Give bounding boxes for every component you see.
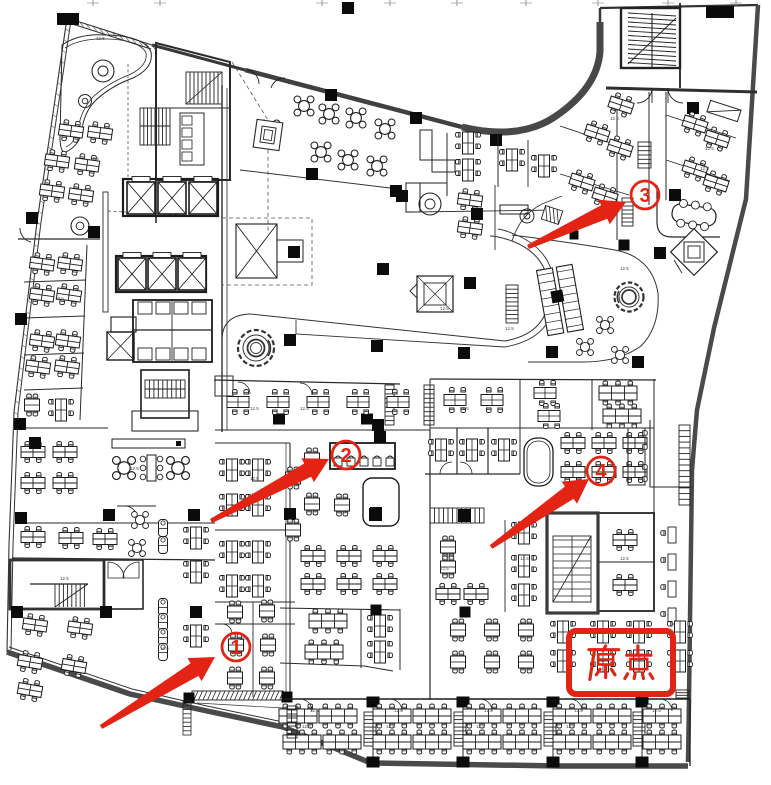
svg-text:12.5: 12.5 <box>505 326 514 331</box>
svg-text:12.5: 12.5 <box>620 556 629 561</box>
svg-text:12.5: 12.5 <box>620 266 629 271</box>
svg-text:12.5: 12.5 <box>96 36 105 41</box>
svg-text:12.5: 12.5 <box>386 724 395 729</box>
svg-text:12.5: 12.5 <box>302 724 311 729</box>
svg-text:12.5: 12.5 <box>440 306 449 311</box>
svg-text:12.5: 12.5 <box>566 724 575 729</box>
svg-text:12.5: 12.5 <box>394 708 403 713</box>
svg-text:12.5: 12.5 <box>250 406 259 411</box>
svg-text:12.5: 12.5 <box>160 646 169 651</box>
svg-text:12.5: 12.5 <box>55 296 64 301</box>
svg-text:12.5: 12.5 <box>574 708 583 713</box>
svg-text:12.5: 12.5 <box>130 466 139 471</box>
svg-text:12.5: 12.5 <box>60 576 69 581</box>
svg-text:12.5: 12.5 <box>700 166 709 171</box>
svg-text:12.5: 12.5 <box>484 708 493 713</box>
svg-text:12.5: 12.5 <box>440 566 449 571</box>
svg-text:12.5: 12.5 <box>250 476 259 481</box>
svg-text:3: 3 <box>639 185 650 207</box>
svg-text:2: 2 <box>340 445 351 467</box>
svg-text:12.5: 12.5 <box>310 708 319 713</box>
svg-text:12.5: 12.5 <box>476 724 485 729</box>
svg-text:12.5: 12.5 <box>90 156 99 161</box>
svg-text:12.5: 12.5 <box>705 146 714 151</box>
svg-text:12.5: 12.5 <box>610 116 619 121</box>
svg-text:12.5: 12.5 <box>240 636 249 641</box>
svg-text:12.5: 12.5 <box>652 708 661 713</box>
svg-text:12.5: 12.5 <box>300 406 309 411</box>
svg-text:4: 4 <box>595 461 607 483</box>
svg-text:12.5: 12.5 <box>520 556 529 561</box>
svg-text:12.5: 12.5 <box>460 406 469 411</box>
